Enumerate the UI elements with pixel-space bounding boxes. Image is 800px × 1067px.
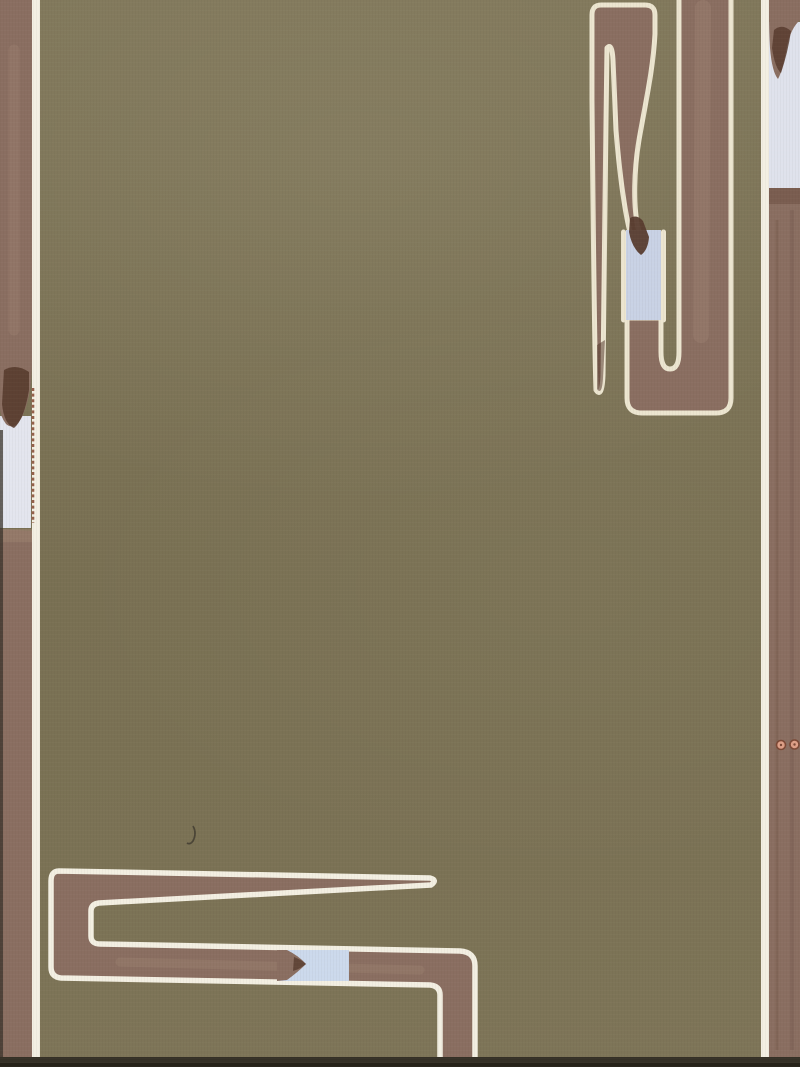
left-stripe-cream-line bbox=[32, 0, 40, 1067]
left-edge-shadow-sliver bbox=[0, 430, 3, 1067]
right-stripe-lower-brown bbox=[769, 188, 800, 1067]
right-edge-stripe bbox=[761, 0, 800, 1067]
left-stripe-blue-inlay bbox=[0, 416, 31, 528]
salmon-dot-1-center bbox=[780, 744, 782, 746]
painting-photo bbox=[0, 0, 800, 1067]
painting-shapes bbox=[0, 0, 800, 1067]
right-stripe-cream-line bbox=[761, 0, 769, 1067]
pencil-mark bbox=[187, 826, 195, 844]
bottom-edge-shadow-deep bbox=[0, 1063, 800, 1067]
left-stripe-lower-brown bbox=[0, 529, 33, 1067]
left-stripe-lower-smear bbox=[0, 529, 33, 542]
salmon-dot-2-center bbox=[793, 743, 795, 745]
tr-band-highlight bbox=[701, 8, 703, 335]
left-edge-stripe bbox=[0, 0, 40, 1067]
top-right-meander bbox=[592, 0, 731, 413]
bottom-left-meander bbox=[51, 871, 475, 1067]
right-stripe-lower-smear bbox=[769, 188, 800, 204]
